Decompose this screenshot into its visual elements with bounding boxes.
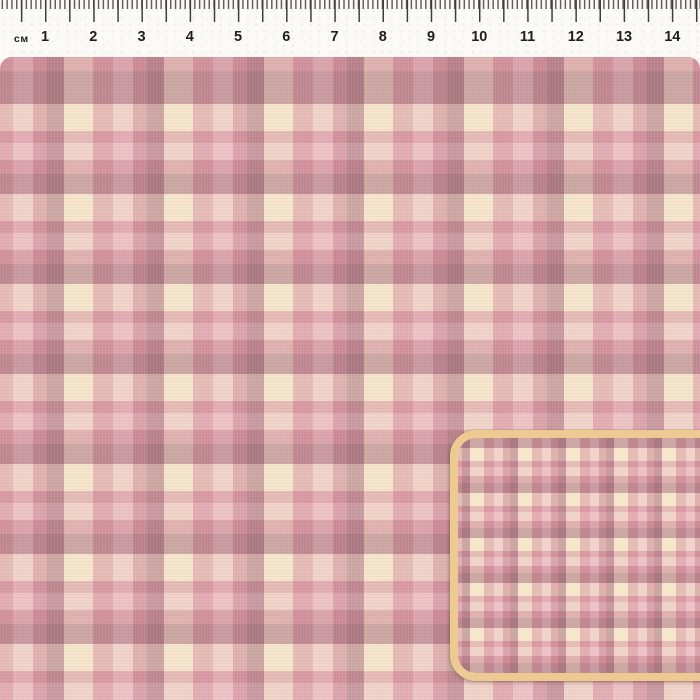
ruler-number: 9 [427, 29, 435, 45]
ruler-number: 5 [234, 29, 242, 45]
ruler-number: 6 [282, 29, 290, 45]
ruler-number: 8 [379, 29, 387, 45]
ruler-number: 2 [89, 29, 97, 45]
ruler-number: 3 [138, 29, 146, 45]
ruler-number: 4 [186, 29, 194, 45]
inset-swatch-preview [450, 430, 700, 681]
ruler-number: 11 [520, 29, 535, 45]
cm-ruler: см 1234567891011121314 [0, 0, 700, 57]
ruler-number: 14 [664, 29, 680, 45]
ruler-tick-marks [0, 0, 700, 24]
ruler-number: 13 [616, 29, 632, 45]
ruler-number: 7 [331, 29, 339, 45]
ruler-number: 1 [41, 29, 49, 45]
ruler-unit-label: см [14, 33, 29, 45]
inset-plaid-pattern [458, 438, 700, 673]
ruler-number: 10 [471, 29, 487, 45]
ruler-number: 12 [568, 29, 584, 45]
fabric-product-photo: см 1234567891011121314 [0, 0, 700, 700]
